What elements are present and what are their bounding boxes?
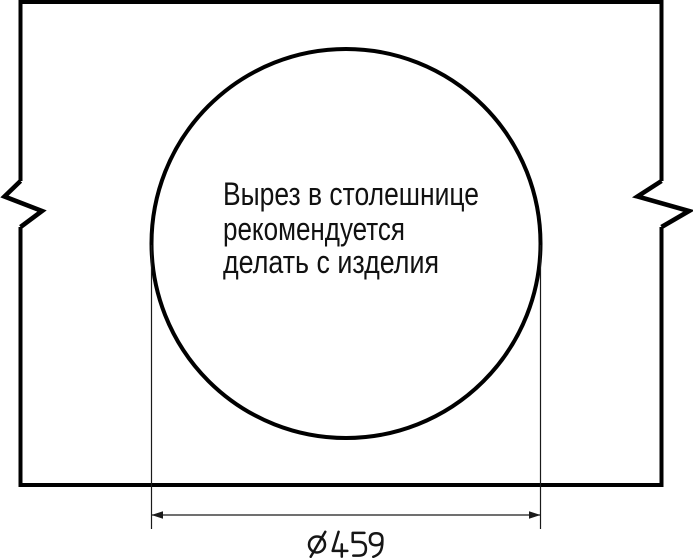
svg-text:рекомендуется: рекомендуется <box>223 211 405 247</box>
svg-text:делать с изделия: делать с изделия <box>223 244 439 280</box>
svg-text:Вырез в столешнице: Вырез в столешнице <box>223 176 479 212</box>
